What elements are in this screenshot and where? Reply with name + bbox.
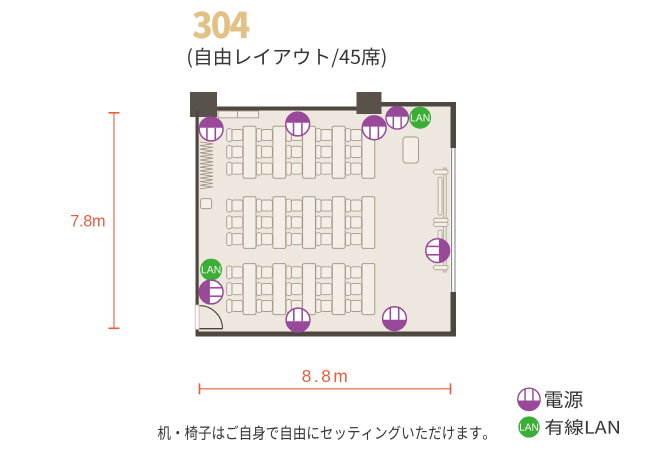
- svg-text:8.8m: 8.8m: [302, 366, 351, 386]
- svg-text:7.8m: 7.8m: [70, 212, 105, 230]
